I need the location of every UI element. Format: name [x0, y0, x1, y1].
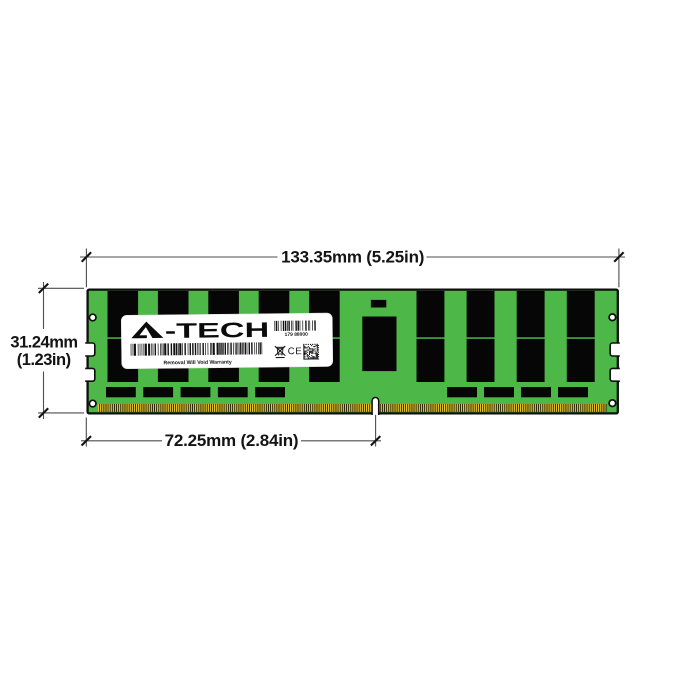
svg-text:CE: CE: [288, 346, 303, 357]
svg-text:31.24mm: 31.24mm: [10, 334, 77, 352]
svg-text:(1.23in): (1.23in): [17, 351, 71, 369]
svg-text:133.35mm (5.25in): 133.35mm (5.25in): [281, 247, 424, 266]
svg-text:Removal Will Void Warranty: Removal Will Void Warranty: [163, 360, 231, 367]
svg-text:72.25mm (2.84in): 72.25mm (2.84in): [165, 431, 299, 450]
svg-text:179 88000: 179 88000: [285, 332, 308, 338]
svg-text:-TECH: -TECH: [165, 319, 270, 343]
